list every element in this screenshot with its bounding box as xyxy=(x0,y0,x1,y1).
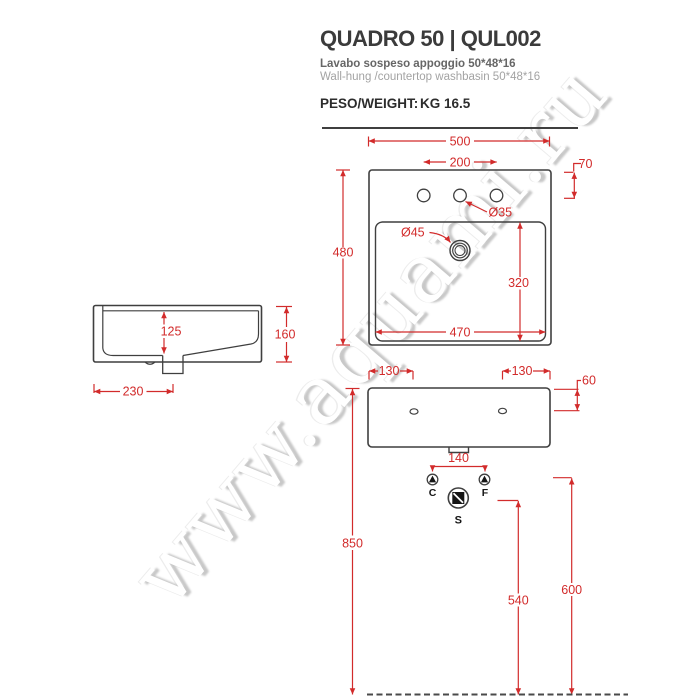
dim-drain-offset-label: 230 xyxy=(123,385,144,399)
dim-overall-height: 160 xyxy=(275,307,296,363)
mounting-hole-right xyxy=(499,408,507,413)
header-divider xyxy=(322,127,578,129)
subtitle-english: Wall-hung /countertop washbasin 50*48*16 xyxy=(320,71,620,83)
dim-faucet-holes-span-label: 200 xyxy=(450,156,471,170)
dim-hole-top-offset: 60 xyxy=(554,374,596,411)
weight-row: PESO/WEIGHT:KG 16.5 xyxy=(320,96,620,111)
dim-left-hole-offset-label: 130 xyxy=(379,364,400,378)
dim-faucet-diameter-label: Ø35 xyxy=(489,206,513,220)
product-title: QUADRO 50 | QUL002 xyxy=(320,26,620,52)
waste-drain-symbol: S xyxy=(448,488,468,527)
dim-supply-height-label: 600 xyxy=(561,583,582,597)
dim-overall-width-label: 500 xyxy=(450,135,471,149)
dim-supply-height: 600 xyxy=(553,478,582,695)
dim-faucet-holes-span: 200 xyxy=(424,156,497,170)
dim-basin-inner-depth: 320 xyxy=(508,223,529,342)
dim-basin-inner-width-label: 470 xyxy=(450,326,471,340)
dim-basin-inner-height-label: 125 xyxy=(161,325,182,339)
dim-supply-span: 140 xyxy=(433,451,486,472)
side-basin-floor-slope xyxy=(183,311,259,356)
leader-drain-diameter: Ø45 xyxy=(401,226,451,243)
spec-sheet: www.aquami.ru QUADRO 50 | QUL002 Lavabo … xyxy=(0,0,700,700)
dim-right-hole-offset: 130 xyxy=(503,364,551,380)
dim-drain-height-label: 540 xyxy=(508,594,529,608)
faucet-hole-left xyxy=(417,189,430,202)
dim-basin-inner-height: 125 xyxy=(161,312,182,354)
dim-hole-top-offset-label: 60 xyxy=(582,374,596,388)
drain-hole xyxy=(450,241,470,261)
dim-overall-width: 500 xyxy=(369,135,550,149)
dim-left-hole-offset: 130 xyxy=(369,364,413,380)
dim-rim-height: 850 xyxy=(342,389,363,695)
dim-drain-height: 540 xyxy=(498,501,529,695)
subtitle-italian: Lavabo sospeso appoggio 50*48*16 xyxy=(320,58,620,70)
leader-faucet-diameter: Ø35 xyxy=(466,202,513,220)
faucet-hole-right xyxy=(490,189,503,202)
cold-water-symbol: C xyxy=(427,474,438,499)
mounting-hole-left xyxy=(410,409,418,414)
faucet-hole-center xyxy=(454,189,467,202)
dim-drain-diameter-label: Ø45 xyxy=(401,226,425,240)
cold-water-label: C xyxy=(429,487,437,499)
front-view-outline xyxy=(368,388,550,447)
side-drain-outlet xyxy=(163,356,183,374)
top-view: 500 200 70 480 xyxy=(333,135,593,346)
side-view: 125 160 230 xyxy=(94,306,296,399)
dim-supply-span-label: 140 xyxy=(448,451,469,465)
dim-right-hole-offset-label: 130 xyxy=(512,364,533,378)
waste-drain-label: S xyxy=(455,515,462,527)
dim-basin-inner-depth-label: 320 xyxy=(508,276,529,290)
front-view: 130 130 60 C xyxy=(342,364,628,695)
dim-faucet-holes-offset-label: 70 xyxy=(579,157,593,171)
weight-label: PESO/WEIGHT: xyxy=(320,96,420,111)
dim-faucet-holes-offset: 70 xyxy=(564,157,592,198)
header: QUADRO 50 | QUL002 Lavabo sospeso appogg… xyxy=(320,26,620,111)
hot-water-symbol: F xyxy=(479,474,490,499)
dim-rim-height-label: 850 xyxy=(342,537,363,551)
dim-overall-depth: 480 xyxy=(333,170,354,345)
side-basin-back-wall xyxy=(103,306,163,356)
dim-overall-depth-label: 480 xyxy=(333,246,354,260)
dim-overall-height-label: 160 xyxy=(275,328,296,342)
dim-drain-offset: 230 xyxy=(94,384,173,399)
hot-water-label: F xyxy=(482,487,489,499)
weight-value: KG 16.5 xyxy=(420,96,470,111)
